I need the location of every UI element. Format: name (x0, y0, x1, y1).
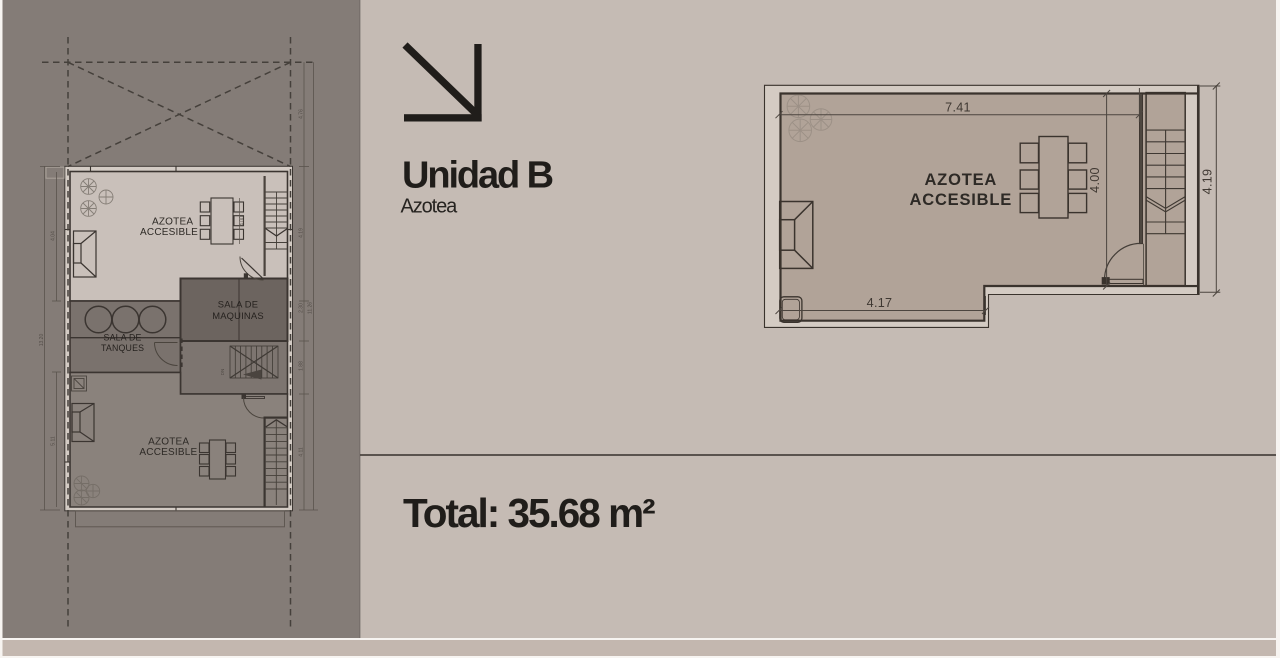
svg-text:MAQUINAS: MAQUINAS (212, 310, 264, 321)
svg-text:4.04: 4.04 (51, 231, 57, 241)
svg-text:4.00: 4.00 (1088, 167, 1102, 193)
svg-text:AZOTEA: AZOTEA (924, 171, 997, 189)
svg-text:4.11: 4.11 (299, 447, 305, 457)
svg-text:SALA DE: SALA DE (104, 332, 142, 342)
svg-text:AZOTEA: AZOTEA (148, 437, 189, 448)
svg-text:DN: DN (220, 369, 225, 376)
svg-text:7.41: 7.41 (945, 101, 971, 115)
svg-text:Unidad B: Unidad B (402, 155, 553, 197)
svg-text:SALA DE: SALA DE (218, 299, 258, 310)
svg-text:4.00: 4.00 (240, 216, 246, 226)
svg-text:13.20: 13.20 (39, 334, 45, 347)
svg-text:ACCESIBLE: ACCESIBLE (140, 227, 198, 238)
svg-text:11.26: 11.26 (308, 302, 314, 314)
svg-text:Azotea: Azotea (401, 196, 459, 218)
svg-text:4.19: 4.19 (299, 228, 305, 238)
svg-text:AZOTEA: AZOTEA (152, 216, 193, 227)
svg-text:4.76: 4.76 (299, 109, 305, 119)
svg-text:4.19: 4.19 (1201, 169, 1215, 195)
svg-text:ACCESIBLE: ACCESIBLE (139, 447, 197, 458)
svg-text:Total: 35.68 m²: Total: 35.68 m² (403, 490, 655, 536)
svg-text:5.11: 5.11 (51, 436, 57, 446)
svg-text:ACCESIBLE: ACCESIBLE (910, 191, 1013, 209)
svg-text:4.17: 4.17 (867, 296, 893, 310)
svg-text:2.30: 2.30 (299, 303, 305, 313)
svg-text:TANQUES: TANQUES (101, 343, 144, 353)
svg-text:1.88: 1.88 (299, 361, 305, 371)
